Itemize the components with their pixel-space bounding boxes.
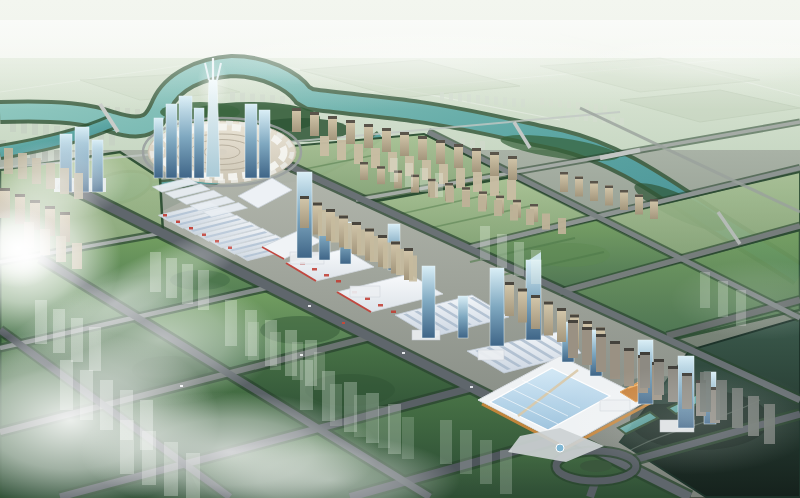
residential-row bbox=[620, 190, 628, 210]
residential-row-roof bbox=[364, 124, 373, 127]
haze-patch bbox=[200, 30, 640, 90]
residential-row-roof bbox=[575, 177, 583, 180]
residential-row-roof bbox=[568, 320, 578, 323]
residential-row bbox=[472, 148, 481, 172]
residential-row bbox=[508, 156, 517, 180]
residential-row-roof bbox=[640, 352, 650, 355]
residential-row bbox=[531, 295, 540, 329]
residential-row bbox=[635, 195, 643, 215]
car bbox=[342, 322, 345, 324]
residential-row bbox=[436, 140, 445, 164]
residential-row bbox=[354, 144, 363, 164]
residential-row bbox=[557, 308, 566, 342]
residential-row bbox=[371, 148, 380, 168]
car bbox=[470, 386, 473, 388]
red-signage bbox=[336, 280, 341, 283]
residential-row-roof bbox=[436, 140, 445, 143]
ghost-building-row bbox=[405, 163, 413, 187]
residential-row-roof bbox=[300, 196, 309, 199]
residential-row bbox=[346, 120, 355, 144]
residential-row bbox=[605, 186, 613, 206]
residential-row bbox=[300, 196, 309, 228]
residential-row-roof bbox=[530, 204, 538, 207]
residential-row-roof bbox=[620, 190, 628, 193]
residential-row bbox=[409, 256, 417, 282]
distant-city-row bbox=[620, 118, 624, 125]
residential-row bbox=[510, 205, 518, 221]
residential-row bbox=[478, 196, 486, 212]
ghost-building-row bbox=[435, 173, 443, 197]
residential-row bbox=[292, 108, 301, 132]
residential-row bbox=[462, 191, 470, 207]
residential-row-roof bbox=[557, 308, 566, 311]
residential-row-roof bbox=[513, 200, 521, 203]
residential-row bbox=[320, 136, 329, 156]
residential-row-roof bbox=[654, 359, 664, 362]
tree-cluster bbox=[530, 243, 610, 267]
ghost-building-row bbox=[531, 250, 541, 284]
red-signage bbox=[378, 304, 383, 307]
residential-row bbox=[328, 116, 337, 140]
residential-row bbox=[337, 140, 346, 160]
residential-row bbox=[344, 223, 352, 249]
red-signage bbox=[176, 221, 180, 224]
residential-row-roof bbox=[531, 295, 540, 298]
residential-row-roof bbox=[378, 235, 387, 238]
ghost-building-row bbox=[460, 430, 472, 474]
car bbox=[308, 305, 311, 307]
ghost-building-row bbox=[420, 168, 428, 192]
residential-row-roof bbox=[610, 341, 620, 344]
residential-row bbox=[590, 181, 598, 201]
residential-row-roof bbox=[310, 112, 319, 115]
residential-row-roof bbox=[472, 148, 481, 151]
residential-row bbox=[473, 172, 482, 192]
residential-row-roof bbox=[400, 132, 409, 135]
ghost-building-row bbox=[497, 234, 507, 268]
residential-row-roof bbox=[339, 216, 348, 219]
residential-row-roof bbox=[590, 181, 598, 184]
residential-row-roof bbox=[496, 196, 504, 199]
residential-row-roof bbox=[479, 191, 487, 194]
office-tower bbox=[422, 266, 435, 338]
office-tower bbox=[458, 296, 468, 338]
glass-tower bbox=[154, 118, 163, 178]
residential-row bbox=[507, 180, 516, 200]
residential-row bbox=[518, 289, 527, 323]
residential-row-roof bbox=[624, 348, 634, 351]
distant-city-row bbox=[109, 134, 115, 146]
red-signage bbox=[312, 268, 317, 271]
residential-row-roof bbox=[404, 248, 413, 251]
residential-row bbox=[360, 162, 368, 180]
residential-row-roof bbox=[346, 120, 355, 123]
residential-row bbox=[318, 210, 326, 236]
scene bbox=[0, 0, 800, 498]
office-tower bbox=[490, 268, 504, 346]
red-signage bbox=[189, 227, 193, 230]
residential-row bbox=[505, 282, 514, 316]
residential-row bbox=[650, 199, 658, 219]
distant-city-row bbox=[470, 140, 475, 149]
residential-row bbox=[400, 132, 409, 156]
residential-row bbox=[377, 166, 385, 184]
residential-row-roof bbox=[508, 156, 517, 159]
aerial-masterplan-rendering bbox=[0, 0, 800, 498]
residential-row-roof bbox=[462, 187, 470, 190]
residential-row-roof bbox=[352, 222, 361, 225]
residential-row-roof bbox=[391, 242, 400, 245]
red-signage bbox=[391, 311, 396, 314]
plaza-fountain bbox=[556, 444, 564, 452]
residential-row bbox=[396, 249, 404, 275]
residential-row bbox=[331, 217, 339, 243]
residential-row bbox=[610, 341, 620, 379]
residential-row bbox=[596, 334, 606, 372]
glass-tower bbox=[166, 104, 177, 178]
residential-row bbox=[382, 128, 391, 152]
residential-row bbox=[542, 214, 550, 230]
ghost-building-row bbox=[480, 226, 490, 260]
residential-row-roof bbox=[445, 183, 453, 186]
residential-row bbox=[310, 112, 319, 136]
residential-row-roof bbox=[570, 315, 579, 318]
residential-row bbox=[383, 243, 391, 269]
residential-row-roof bbox=[635, 195, 643, 198]
residential-row bbox=[357, 230, 365, 256]
residential-row-roof bbox=[360, 162, 368, 165]
residential-row-roof bbox=[454, 144, 463, 147]
podium-building bbox=[350, 286, 380, 297]
residential-row-roof bbox=[328, 116, 337, 119]
residential-row bbox=[370, 236, 378, 262]
ghost-building-row bbox=[390, 158, 398, 182]
residential-row bbox=[582, 327, 592, 365]
residential-row-roof bbox=[582, 327, 592, 330]
residential-row-roof bbox=[650, 199, 658, 202]
car bbox=[402, 352, 405, 354]
residential-row-roof bbox=[544, 302, 553, 305]
podium-building bbox=[478, 350, 504, 360]
residential-row-roof bbox=[382, 128, 391, 131]
red-signage bbox=[365, 298, 370, 301]
glass-tower bbox=[245, 104, 257, 178]
distant-city-row bbox=[566, 112, 570, 119]
residential-row bbox=[456, 168, 465, 188]
ghost-building-row bbox=[500, 450, 512, 494]
residential-row-roof bbox=[560, 172, 568, 175]
residential-row bbox=[560, 172, 568, 192]
residential-row-roof bbox=[505, 282, 514, 285]
residential-row-roof bbox=[326, 209, 335, 212]
residential-row-roof bbox=[428, 179, 436, 182]
glass-tower bbox=[194, 108, 204, 178]
residential-row bbox=[418, 136, 427, 160]
red-signage bbox=[324, 274, 329, 277]
residential-row bbox=[494, 200, 502, 216]
residential-row-roof bbox=[518, 289, 527, 292]
residential-row bbox=[544, 302, 553, 336]
residential-row bbox=[575, 177, 583, 197]
residential-row bbox=[454, 144, 463, 168]
residential-row bbox=[446, 187, 454, 203]
residential-row bbox=[526, 209, 534, 225]
glass-tower bbox=[259, 110, 270, 178]
ghost-building-row bbox=[514, 242, 524, 276]
residential-row bbox=[364, 124, 373, 148]
residential-row-roof bbox=[596, 334, 606, 337]
residential-row-roof bbox=[490, 152, 499, 155]
residential-row-roof bbox=[605, 186, 613, 189]
red-signage bbox=[163, 214, 167, 217]
residential-row-roof bbox=[377, 166, 385, 169]
residential-row-roof bbox=[596, 328, 605, 331]
residential-row bbox=[490, 176, 499, 196]
residential-row bbox=[490, 152, 499, 176]
residential-row-roof bbox=[418, 136, 427, 139]
residential-row bbox=[568, 320, 578, 358]
distant-city-row bbox=[32, 123, 38, 135]
residential-row-roof bbox=[583, 321, 592, 324]
ghost-building-row bbox=[480, 440, 492, 484]
residential-row-roof bbox=[365, 229, 374, 232]
residential-row bbox=[558, 218, 566, 234]
residential-row-roof bbox=[313, 203, 322, 206]
